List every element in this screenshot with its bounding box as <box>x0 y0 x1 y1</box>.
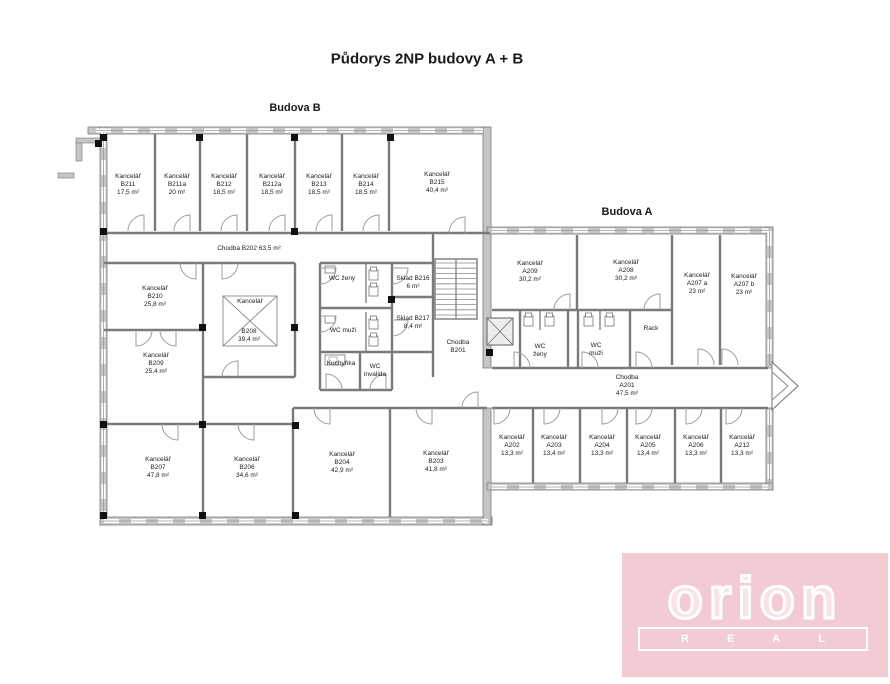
outer-wall <box>483 408 491 525</box>
door-swing <box>416 408 432 424</box>
floorplan-page: Půdorys 2NP budovy A + B Budova B Budova… <box>0 0 890 684</box>
toilet-tank <box>371 333 377 337</box>
door-swing <box>221 215 237 231</box>
structural-column <box>387 134 394 141</box>
structural-column <box>486 349 493 356</box>
toilet-tank <box>547 313 553 317</box>
toilet-fixture <box>369 336 378 346</box>
toilet-tank <box>371 316 377 320</box>
exit-arrow <box>772 362 798 410</box>
toilet-fixture <box>369 319 378 329</box>
door-swing <box>174 215 190 231</box>
toilet-fixture <box>545 316 554 326</box>
door-swing <box>582 352 598 368</box>
toilet-fixture <box>369 270 378 280</box>
toilet-fixture <box>369 286 378 296</box>
toilet-tank <box>586 313 592 317</box>
kitchen-counter <box>325 355 345 365</box>
toilet-fixture <box>524 316 533 326</box>
door-swing <box>269 215 285 231</box>
structural-column <box>291 134 298 141</box>
sink-fixture <box>325 266 335 273</box>
door-swing <box>314 408 330 424</box>
logo-watermark: orion REAL <box>622 553 888 677</box>
exterior-wall-stub <box>58 173 74 178</box>
door-swing <box>316 215 332 231</box>
toilet-fixture <box>605 316 614 326</box>
door-swing <box>686 408 702 424</box>
structural-column <box>199 512 206 519</box>
structural-column <box>291 324 298 331</box>
structural-column <box>100 134 107 141</box>
door-swing <box>462 392 478 408</box>
structural-column <box>196 134 203 141</box>
door-swing <box>370 374 386 390</box>
door-swing <box>636 408 652 424</box>
structural-column <box>199 421 206 428</box>
door-swing <box>162 424 178 440</box>
toilet-tank <box>526 313 532 317</box>
structural-column <box>100 512 107 519</box>
door-swing <box>222 361 238 377</box>
door-swing <box>449 217 465 233</box>
structural-column <box>100 421 107 428</box>
door-swing <box>238 424 254 440</box>
door-swing <box>128 215 144 231</box>
structural-column <box>95 140 102 147</box>
door-swing <box>698 349 714 365</box>
toilet-tank <box>607 313 613 317</box>
door-swing <box>363 215 379 231</box>
door-swing <box>494 408 510 424</box>
toilet-tank <box>371 267 377 271</box>
door-swing <box>392 320 408 336</box>
structural-column <box>292 422 299 429</box>
exterior-wall-stub <box>76 143 82 161</box>
structural-column <box>199 324 206 331</box>
door-swing <box>544 408 560 424</box>
logo-sub-text: REAL <box>638 627 868 651</box>
structural-column <box>292 512 299 519</box>
door-swing <box>554 294 570 310</box>
logo-brand-text: orion <box>668 570 843 628</box>
toilet-fixture <box>584 316 593 326</box>
door-swing <box>722 349 738 365</box>
door-swing <box>222 263 238 279</box>
door-swing <box>180 263 196 279</box>
structural-column <box>291 228 298 235</box>
door-swing <box>392 268 408 284</box>
door-swing <box>136 330 152 346</box>
structural-column <box>388 296 395 303</box>
structural-column <box>100 228 107 235</box>
door-swing <box>644 294 660 310</box>
sink-fixture <box>325 316 335 323</box>
door-swing <box>326 374 342 390</box>
door-swing <box>636 352 652 368</box>
door-swing <box>514 352 530 368</box>
door-swing <box>726 408 742 424</box>
door-swing <box>160 330 176 346</box>
door-swing <box>602 408 618 424</box>
toilet-tank <box>371 283 377 287</box>
